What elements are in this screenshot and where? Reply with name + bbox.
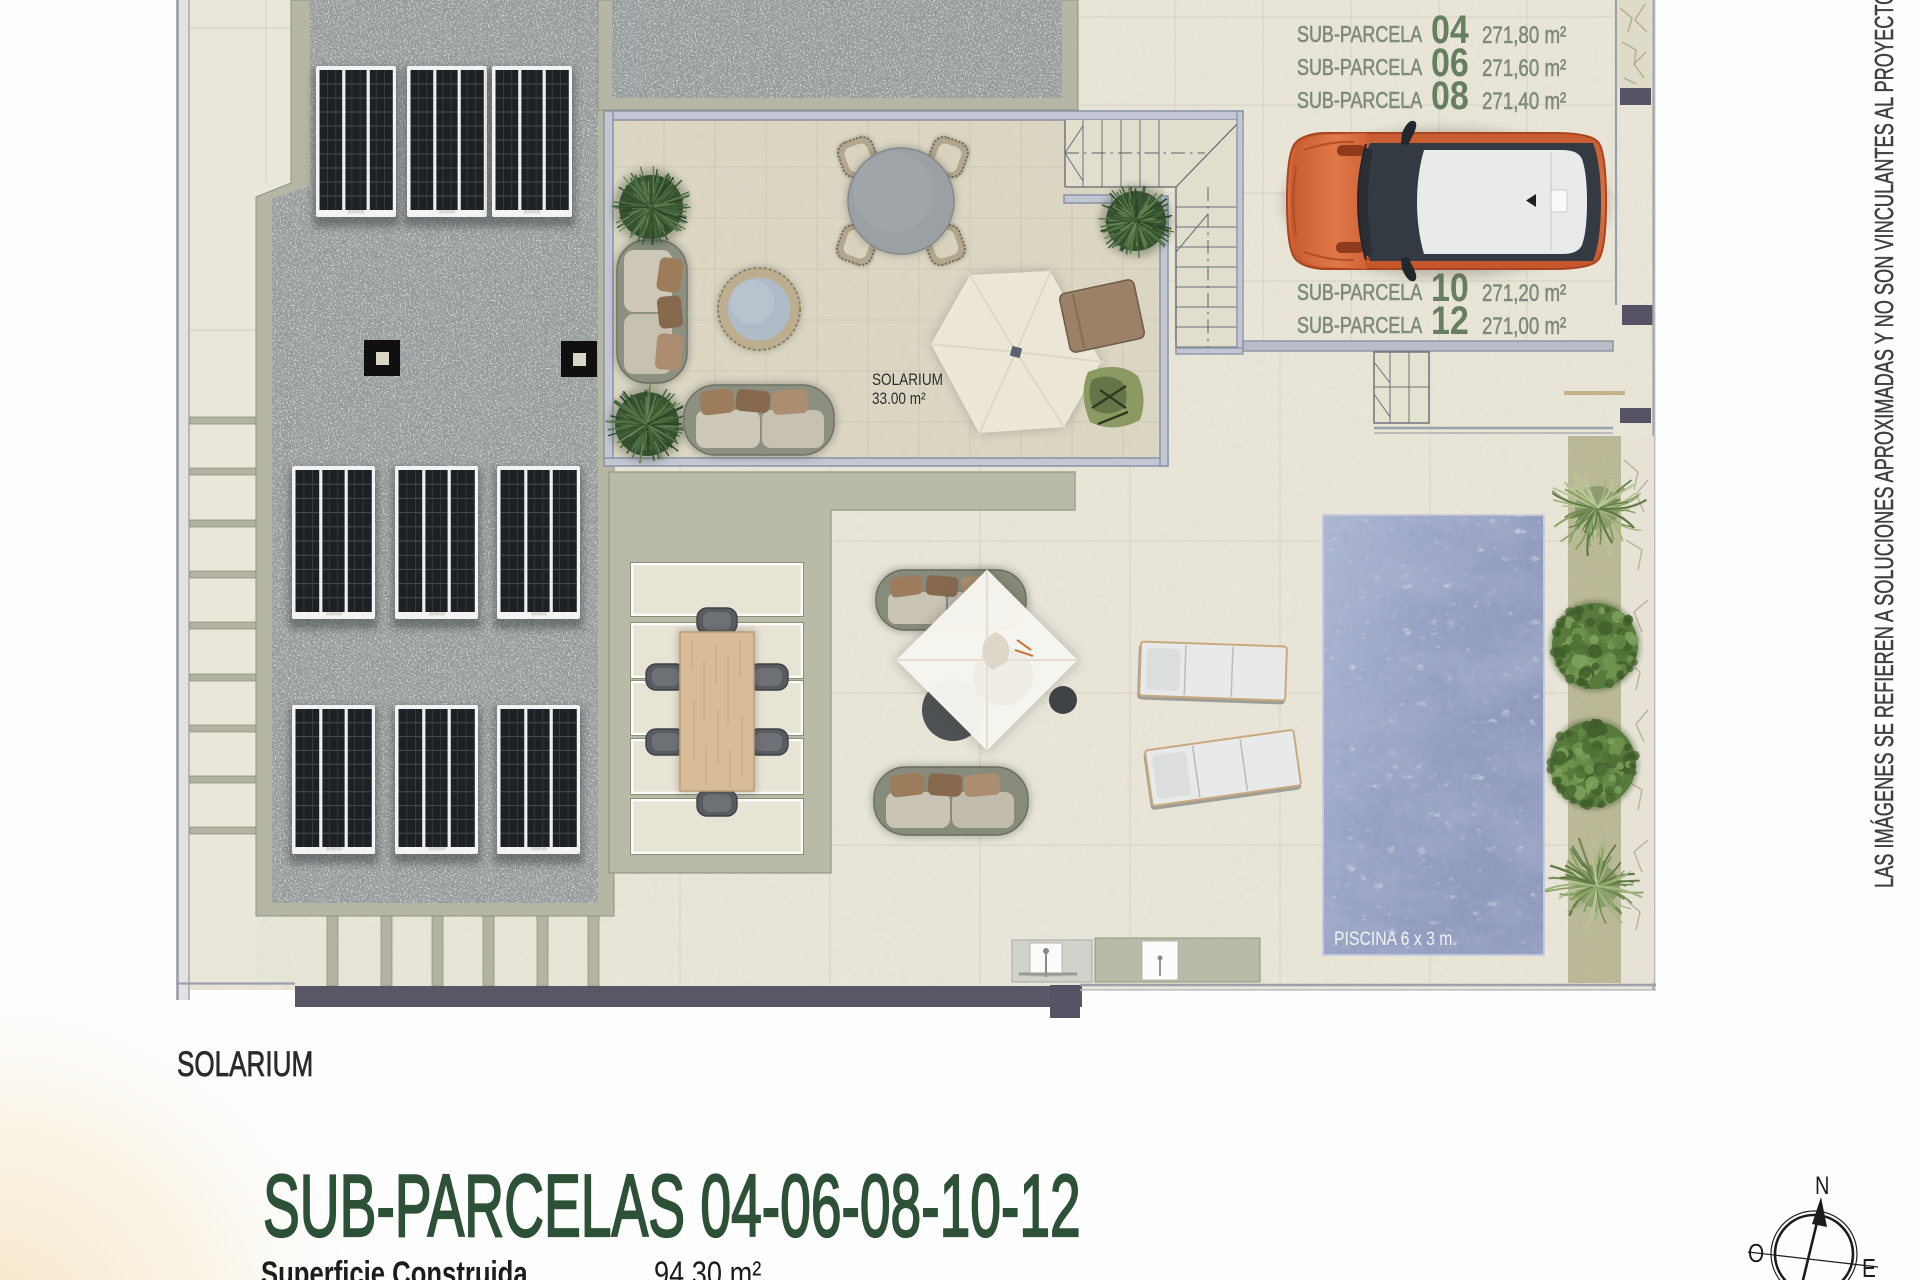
svg-text:Superficie Construida: Superficie Construida <box>261 1256 528 1280</box>
svg-text:O: O <box>1748 1239 1764 1268</box>
svg-text:SOLARIUM: SOLARIUM <box>872 371 943 390</box>
svg-text:33.00 m²: 33.00 m² <box>872 390 926 409</box>
svg-text:08: 08 <box>1431 72 1469 117</box>
svg-text:SUB-PARCELA: SUB-PARCELA <box>1297 88 1422 114</box>
svg-text:SUB-PARCELA: SUB-PARCELA <box>1297 55 1422 81</box>
svg-text:SUB-PARCELA: SUB-PARCELA <box>1297 280 1422 306</box>
svg-text:SUB-PARCELAS 04-06-08-10-12: SUB-PARCELAS 04-06-08-10-12 <box>263 1157 1081 1255</box>
svg-text:SOLARIUM: SOLARIUM <box>177 1044 313 1084</box>
svg-text:12: 12 <box>1431 297 1469 342</box>
svg-text:271,00 m²: 271,00 m² <box>1482 313 1566 340</box>
svg-text:SUB-PARCELA: SUB-PARCELA <box>1297 22 1422 48</box>
svg-text:PISCINA 6 x 3 m.: PISCINA 6 x 3 m. <box>1334 927 1457 949</box>
svg-text:E: E <box>1862 1254 1876 1280</box>
svg-text:94,30 m²: 94,30 m² <box>654 1254 761 1280</box>
svg-text:SUB-PARCELA: SUB-PARCELA <box>1297 313 1422 339</box>
svg-text:LAS IMÁGENES SE REFIEREN A SOL: LAS IMÁGENES SE REFIEREN A SOLUCIONES AP… <box>1870 0 1899 888</box>
svg-text:N: N <box>1815 1172 1829 1200</box>
svg-text:271,20 m²: 271,20 m² <box>1482 280 1566 307</box>
svg-text:271,40 m²: 271,40 m² <box>1482 88 1566 115</box>
svg-text:271,60 m²: 271,60 m² <box>1482 55 1566 82</box>
svg-text:271,80 m²: 271,80 m² <box>1482 22 1566 49</box>
